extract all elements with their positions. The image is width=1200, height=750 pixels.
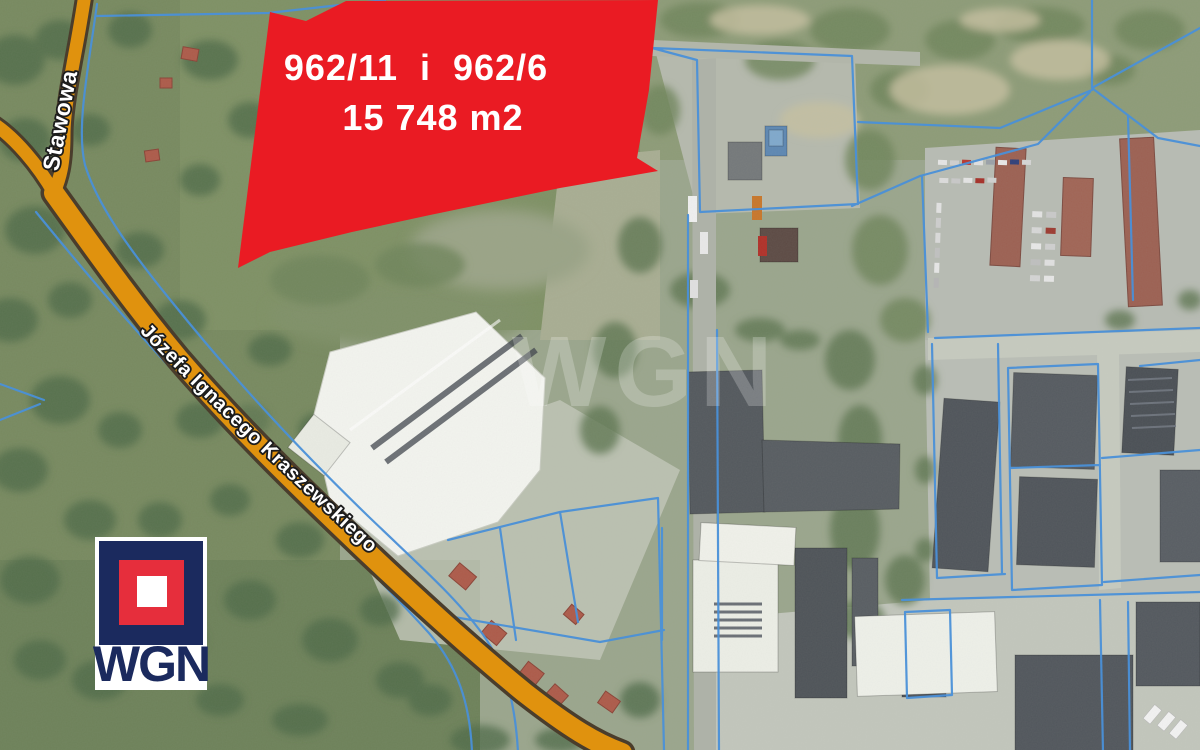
parcel-plot-numbers: 962/11 i 962/6 — [284, 47, 548, 88]
logo-white-square — [137, 576, 167, 607]
map-root: Stawowa Józefa Ignacego Kraszewskiego 96… — [0, 0, 1200, 750]
wgn-logo: WGN — [93, 537, 209, 692]
logo-wordmark: WGN — [93, 636, 209, 692]
parcel-area: 15 748 m2 — [342, 97, 523, 138]
watermark-text: WGN — [512, 316, 780, 428]
satellite-map: Stawowa Józefa Ignacego Kraszewskiego 96… — [0, 0, 1200, 750]
